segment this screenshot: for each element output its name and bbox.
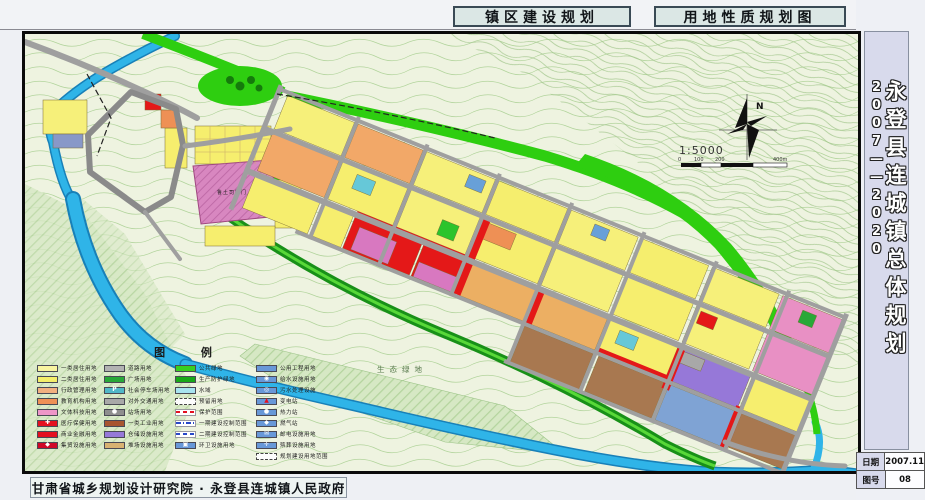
- legend-label: 热力站: [280, 408, 298, 416]
- legend-label: 污水处理设施: [280, 386, 316, 394]
- legend-swatch: ●: [104, 409, 125, 416]
- legend-swatch: [104, 442, 125, 449]
- legend-label: 教育机构用地: [61, 397, 97, 405]
- legend-glyph-icon: ✉: [264, 431, 269, 437]
- legend-label: 仓储设施用地: [128, 430, 164, 438]
- legend-swatch: [175, 409, 196, 416]
- legend-swatch: [175, 398, 196, 405]
- legend-item: 商业金融用地: [37, 430, 99, 438]
- legend-item: ◎污水处理设施: [256, 386, 334, 394]
- legend-swatch: ◆: [256, 420, 277, 427]
- legend-item: 文体科技用地: [37, 408, 99, 416]
- legend-item: ◉给水设施用地: [256, 375, 334, 383]
- legend-label: 公用工程用地: [280, 364, 316, 372]
- legend-swatch: [37, 409, 58, 416]
- legend-item: ◆集贸设施用地: [37, 441, 99, 449]
- legend-swatch: ●: [256, 409, 277, 416]
- legend-item: 一类居住用地: [37, 364, 99, 372]
- legend-column: 道路用地广场用地P社会停车场用地对外交通用地●站场用地一类工业用地仓储设施用地堆…: [104, 364, 170, 460]
- legend-swatch: ✉: [256, 431, 277, 438]
- legend-columns: 一类居住用地二类居住用地行政管理用地教育机构用地文体科技用地✚医疗保健用地商业金…: [37, 364, 329, 460]
- legend-item: 一期建设控制范围: [175, 419, 251, 427]
- north-label: N: [756, 102, 764, 112]
- footer-credit-text: 甘肃省城乡规划设计研究院 · 永登县连城镇人民政府: [32, 478, 345, 497]
- legend-glyph-icon: ●: [112, 409, 117, 415]
- legend-glyph-icon: ✚: [45, 420, 50, 426]
- legend-label: 对外交通用地: [128, 397, 164, 405]
- legend-label: 一类工业用地: [128, 419, 164, 427]
- legend-label: 站场用地: [128, 408, 152, 416]
- date-label: 日期: [857, 453, 885, 470]
- legend-glyph-icon: P: [112, 387, 116, 393]
- legend-label: 一类居住用地: [61, 364, 97, 372]
- info-row-date: 日期 2007.11: [857, 453, 924, 471]
- legend-swatch: [37, 376, 58, 383]
- legend-column: 公共绿地生产防护绿地水域预留用地保护范围一期建设控制范围二期建设控制范围▣环卫设…: [175, 364, 251, 460]
- legend-glyph-icon: ◎: [264, 387, 269, 393]
- legend-label: 给水设施用地: [280, 375, 316, 383]
- legend-label: 生产防护绿地: [199, 375, 235, 383]
- legend-swatch: P: [104, 387, 125, 394]
- legend-label: 社会停车场用地: [128, 386, 170, 394]
- legend-swatch: [175, 376, 196, 383]
- legend-item: ●站场用地: [104, 408, 170, 416]
- legend-title: 图 例: [37, 344, 329, 360]
- legend-swatch: [175, 365, 196, 372]
- legend-item: ◆燃气站: [256, 419, 334, 427]
- sidebar-years: 2007——2020: [869, 80, 884, 260]
- legend-swatch: [256, 453, 277, 460]
- legend-swatch: [104, 398, 125, 405]
- legend-item: 一类工业用地: [104, 419, 170, 427]
- legend-item: 保护范围: [175, 408, 251, 416]
- sidebar-text: 永登县连城镇总体规划 2007——2020: [868, 80, 905, 449]
- legend-item: P社会停车场用地: [104, 386, 170, 394]
- legend-label: 堆场设施用地: [128, 441, 164, 449]
- legend-glyph-icon: ●: [264, 409, 269, 415]
- legend-swatch: [37, 387, 58, 394]
- sheet-value: 08: [886, 471, 924, 488]
- scale-tick-1: 100: [694, 157, 704, 163]
- legend-swatch: [37, 365, 58, 372]
- plan-title-right: 用地性质规划图: [654, 6, 846, 27]
- info-row-sheet: 图号 08: [857, 471, 924, 488]
- legend-glyph-icon: ◆: [45, 442, 50, 448]
- legend-label: 环卫设施用地: [199, 441, 235, 449]
- legend-label: 二期建设控制范围: [199, 430, 247, 438]
- legend-swatch: [104, 376, 125, 383]
- map-frame: 生态绿地: [22, 31, 861, 474]
- legend-label: 二类居住用地: [61, 375, 97, 383]
- legend-glyph-icon: ✛: [264, 442, 269, 448]
- legend-swatch: ◎: [256, 387, 277, 394]
- legend-item: ▣环卫设施用地: [175, 441, 251, 449]
- legend-label: 殡葬设施用地: [280, 441, 316, 449]
- plan-sheet: 镇区建设规划 用地性质规划图: [0, 0, 925, 500]
- legend-item: 行政管理用地: [37, 386, 99, 394]
- legend-item: ✚医疗保健用地: [37, 419, 99, 427]
- legend-swatch: [175, 387, 196, 394]
- scale-text: 1:5000: [679, 144, 724, 157]
- legend-swatch: [104, 365, 125, 372]
- legend-item: 教育机构用地: [37, 397, 99, 405]
- legend-label: 一期建设控制范围: [199, 419, 247, 427]
- legend-glyph-icon: ▣: [183, 442, 189, 448]
- legend-item: 水域: [175, 386, 251, 394]
- sidebar-title: 永登县连城镇总体规划: [883, 80, 907, 360]
- legend-swatch: ▣: [175, 442, 196, 449]
- legend-item: 对外交通用地: [104, 397, 170, 405]
- legend-label: 道路用地: [128, 364, 152, 372]
- legend-swatch: ◉: [256, 376, 277, 383]
- legend-item: 仓储设施用地: [104, 430, 170, 438]
- legend-item: ✛殡葬设施用地: [256, 441, 334, 449]
- legend-label: 广场用地: [128, 375, 152, 383]
- scale-tick-0: 0: [678, 157, 681, 163]
- heritage-label: 鲁土司衙门: [217, 189, 247, 196]
- plan-title-left: 镇区建设规划: [453, 6, 631, 27]
- legend-label: 文体科技用地: [61, 408, 97, 416]
- legend-glyph-icon: ◉: [264, 376, 269, 382]
- legend-item: 生产防护绿地: [175, 375, 251, 383]
- legend-label: 水域: [199, 386, 211, 394]
- eco-green-label: 生态绿地: [377, 364, 427, 374]
- legend-label: 燃气站: [280, 419, 298, 427]
- legend-label: 变电站: [280, 397, 298, 405]
- legend-label: 规划建设用地范围: [280, 452, 328, 460]
- legend-column: 公用工程用地◉给水设施用地◎污水处理设施▲变电站●热力站◆燃气站✉邮电设施用地✛…: [256, 364, 334, 460]
- legend-swatch: ▲: [256, 398, 277, 405]
- legend-item: 广场用地: [104, 375, 170, 383]
- legend-item: ▲变电站: [256, 397, 334, 405]
- date-value: 2007.11: [885, 453, 924, 470]
- sidebar-panel: 永登县连城镇总体规划 2007——2020: [864, 31, 909, 450]
- legend-item: 公用工程用地: [256, 364, 334, 372]
- legend-item: ✉邮电设施用地: [256, 430, 334, 438]
- legend-label: 行政管理用地: [61, 386, 97, 394]
- legend-item: 道路用地: [104, 364, 170, 372]
- legend-swatch: [104, 420, 125, 427]
- plan-title-right-text: 用地性质规划图: [684, 7, 817, 27]
- plan-title-left-text: 镇区建设规划: [485, 7, 599, 27]
- scale-tick-3: 400m: [773, 157, 788, 163]
- title-block-info: 日期 2007.11 图号 08: [856, 452, 925, 489]
- footer-credit: 甘肃省城乡规划设计研究院 · 永登县连城镇人民政府: [30, 477, 347, 498]
- legend-column: 一类居住用地二类居住用地行政管理用地教育机构用地文体科技用地✚医疗保健用地商业金…: [37, 364, 99, 460]
- legend-label: 医疗保健用地: [61, 419, 97, 427]
- legend-item: ●热力站: [256, 408, 334, 416]
- legend-label: 保护范围: [199, 408, 223, 416]
- legend-item: 二类居住用地: [37, 375, 99, 383]
- legend-swatch: [37, 431, 58, 438]
- legend-swatch: ✛: [256, 442, 277, 449]
- legend-swatch: ◆: [37, 442, 58, 449]
- sheet-label: 图号: [857, 471, 886, 488]
- legend-item: 公共绿地: [175, 364, 251, 372]
- scale-tick-2: 200: [715, 157, 725, 163]
- legend-swatch: ✚: [37, 420, 58, 427]
- legend-swatch: [175, 420, 196, 427]
- legend-glyph-icon: ◆: [264, 420, 269, 426]
- legend-swatch: [37, 398, 58, 405]
- legend-item: 堆场设施用地: [104, 441, 170, 449]
- legend-label: 集贸设施用地: [61, 441, 97, 449]
- legend-swatch: [104, 431, 125, 438]
- legend-label: 公共绿地: [199, 364, 223, 372]
- legend-item: 规划建设用地范围: [256, 452, 334, 460]
- legend-item: 预留用地: [175, 397, 251, 405]
- legend-swatch: [175, 431, 196, 438]
- legend-glyph-icon: ▲: [264, 398, 269, 404]
- legend-panel: 图 例 一类居住用地二类居住用地行政管理用地教育机构用地文体科技用地✚医疗保健用…: [37, 344, 329, 460]
- legend-label: 预留用地: [199, 397, 223, 405]
- legend-item: 二期建设控制范围: [175, 430, 251, 438]
- legend-label: 商业金融用地: [61, 430, 97, 438]
- legend-swatch: [256, 365, 277, 372]
- legend-label: 邮电设施用地: [280, 430, 316, 438]
